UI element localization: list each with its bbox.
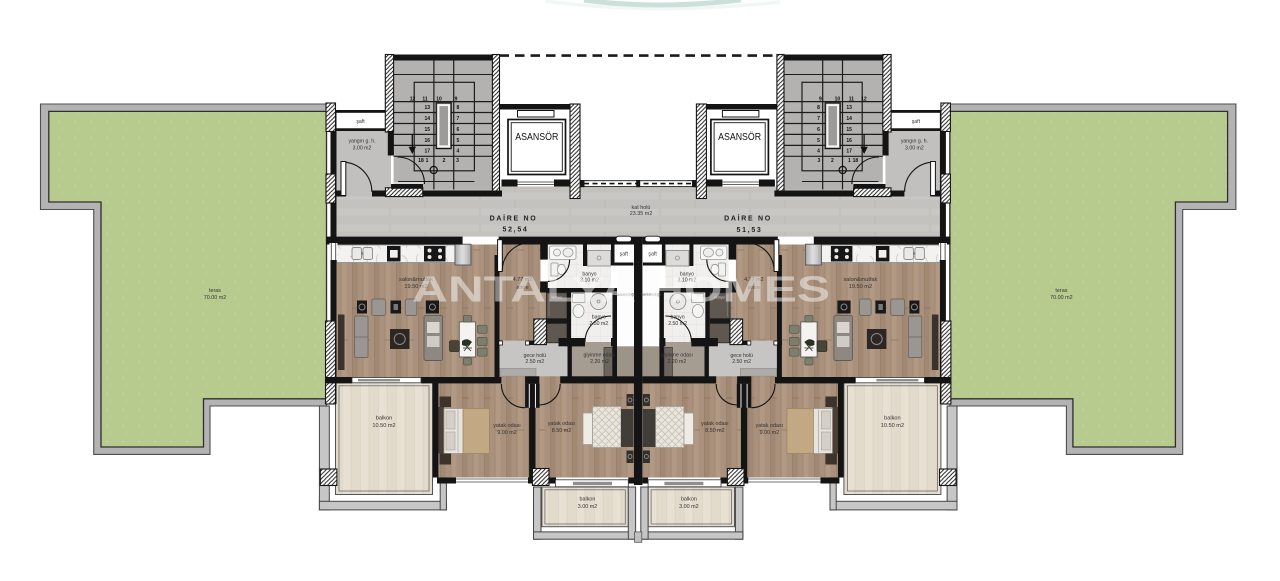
- svg-text:7: 7: [817, 116, 820, 122]
- svg-text:giyinme odası: giyinme odası: [661, 353, 693, 359]
- svg-text:19.50 m2: 19.50 m2: [849, 284, 872, 290]
- svg-text:yangın g. h.: yangın g. h.: [901, 139, 928, 145]
- svg-text:6: 6: [817, 127, 820, 133]
- svg-text:15: 15: [424, 127, 430, 133]
- svg-text:balkon: balkon: [580, 496, 596, 502]
- svg-text:51,53: 51,53: [736, 227, 762, 234]
- svg-text:10: 10: [436, 96, 442, 102]
- svg-text:13: 13: [846, 105, 852, 111]
- svg-text:11: 11: [849, 96, 855, 102]
- svg-text:3.00 m2: 3.00 m2: [905, 146, 924, 152]
- svg-text:4: 4: [457, 149, 460, 155]
- svg-text:yangın g. h.: yangın g. h.: [348, 139, 375, 145]
- svg-text:8: 8: [817, 105, 820, 111]
- svg-text:2.50 m2: 2.50 m2: [589, 321, 608, 327]
- svg-text:3.00 m2: 3.00 m2: [679, 504, 698, 510]
- svg-text:DAİRE NO: DAİRE NO: [724, 215, 772, 223]
- svg-text:ASANSÖR: ASANSÖR: [515, 131, 558, 143]
- svg-text:9.00 m2: 9.00 m2: [497, 430, 516, 436]
- svg-text:4: 4: [817, 149, 820, 155]
- svg-text:2.50 m2: 2.50 m2: [732, 359, 751, 365]
- svg-text:2.20 m2: 2.20 m2: [668, 359, 687, 365]
- svg-text:23.35 m2: 23.35 m2: [630, 211, 652, 217]
- svg-text:giyinme odası: giyinme odası: [583, 353, 615, 359]
- svg-text:17: 17: [424, 149, 430, 155]
- svg-text:14: 14: [846, 116, 852, 122]
- svg-text:16: 16: [424, 138, 430, 144]
- svg-text:yatak odası: yatak odası: [548, 421, 576, 427]
- svg-text:9: 9: [819, 96, 822, 102]
- svg-text:banyo: banyo: [671, 315, 685, 321]
- svg-text:9: 9: [455, 96, 458, 102]
- svg-text:10: 10: [835, 96, 841, 102]
- svg-text:10.50 m2: 10.50 m2: [372, 423, 395, 429]
- svg-text:şaft: şaft: [648, 252, 657, 258]
- svg-text:şaft: şaft: [912, 119, 921, 125]
- svg-text:2: 2: [831, 158, 834, 164]
- svg-text:DAİRE NO: DAİRE NO: [490, 215, 538, 223]
- svg-text:3: 3: [456, 158, 459, 164]
- svg-text:9.00 m2: 9.00 m2: [760, 430, 779, 436]
- svg-text:5: 5: [457, 138, 460, 144]
- svg-text:2.50 m2: 2.50 m2: [668, 321, 687, 327]
- svg-text:16: 16: [846, 138, 852, 144]
- svg-text:gece holü: gece holü: [730, 353, 753, 359]
- svg-text:12: 12: [861, 96, 867, 102]
- svg-text:17: 17: [846, 149, 852, 155]
- svg-text:70.00 m2: 70.00 m2: [204, 295, 226, 301]
- svg-text:salon&mutfak: salon&mutfak: [843, 277, 877, 283]
- svg-text:12: 12: [410, 96, 416, 102]
- svg-text:banyo: banyo: [592, 315, 606, 321]
- svg-text:10.50 m2: 10.50 m2: [881, 423, 904, 429]
- svg-text:balkon: balkon: [376, 416, 392, 422]
- svg-text:gece holü: gece holü: [524, 353, 547, 359]
- svg-text:7: 7: [457, 116, 460, 122]
- svg-text:3: 3: [818, 158, 821, 164]
- svg-text:şaft: şaft: [356, 119, 365, 125]
- svg-text:3.00 m2: 3.00 m2: [578, 504, 597, 510]
- svg-text:teras: teras: [1055, 288, 1067, 294]
- svg-text:1: 1: [426, 158, 429, 164]
- svg-text:8.50 m2: 8.50 m2: [705, 428, 724, 434]
- svg-text:3.00 m2: 3.00 m2: [353, 146, 372, 152]
- svg-text:ANTALYA HOMES: ANTALYA HOMES: [412, 269, 830, 310]
- svg-text:yatak odası: yatak odası: [756, 423, 784, 429]
- svg-text:kat holü: kat holü: [632, 205, 651, 211]
- svg-text:2: 2: [443, 158, 446, 164]
- svg-text:15: 15: [846, 127, 852, 133]
- svg-text:1: 1: [848, 158, 851, 164]
- svg-text:yatak odası: yatak odası: [493, 423, 521, 429]
- svg-text:18: 18: [853, 158, 859, 164]
- svg-text:2.20 m2: 2.20 m2: [590, 359, 609, 365]
- svg-text:6: 6: [457, 127, 460, 133]
- svg-text:8: 8: [457, 105, 460, 111]
- svg-text:balkon: balkon: [681, 496, 697, 502]
- svg-text:yatak odası: yatak odası: [701, 421, 729, 427]
- svg-text:balkon: balkon: [884, 416, 900, 422]
- svg-text:2.50 m2: 2.50 m2: [525, 359, 544, 365]
- svg-text:11: 11: [422, 96, 428, 102]
- svg-text:ASANSÖR: ASANSÖR: [718, 131, 761, 143]
- svg-text:52,54: 52,54: [502, 227, 528, 234]
- svg-text:13: 13: [424, 105, 430, 111]
- svg-text:5: 5: [817, 138, 820, 144]
- svg-text:18: 18: [418, 158, 424, 164]
- svg-text:teras: teras: [209, 288, 221, 294]
- svg-text:14: 14: [424, 116, 430, 122]
- svg-text:şaft: şaft: [620, 252, 629, 258]
- svg-text:8.50 m2: 8.50 m2: [552, 428, 571, 434]
- svg-text:70.00 m2: 70.00 m2: [1050, 295, 1072, 301]
